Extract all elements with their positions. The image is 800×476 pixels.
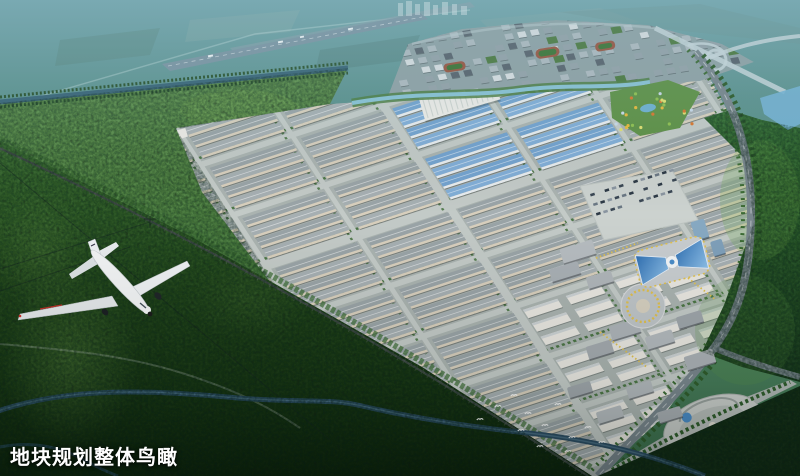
scene-canvas <box>0 0 800 476</box>
caption-title: 地块规划整体鸟瞰 <box>10 441 178 470</box>
birdseye-render: 地块规划整体鸟瞰 <box>0 0 800 476</box>
vignette-overlay <box>0 0 800 476</box>
